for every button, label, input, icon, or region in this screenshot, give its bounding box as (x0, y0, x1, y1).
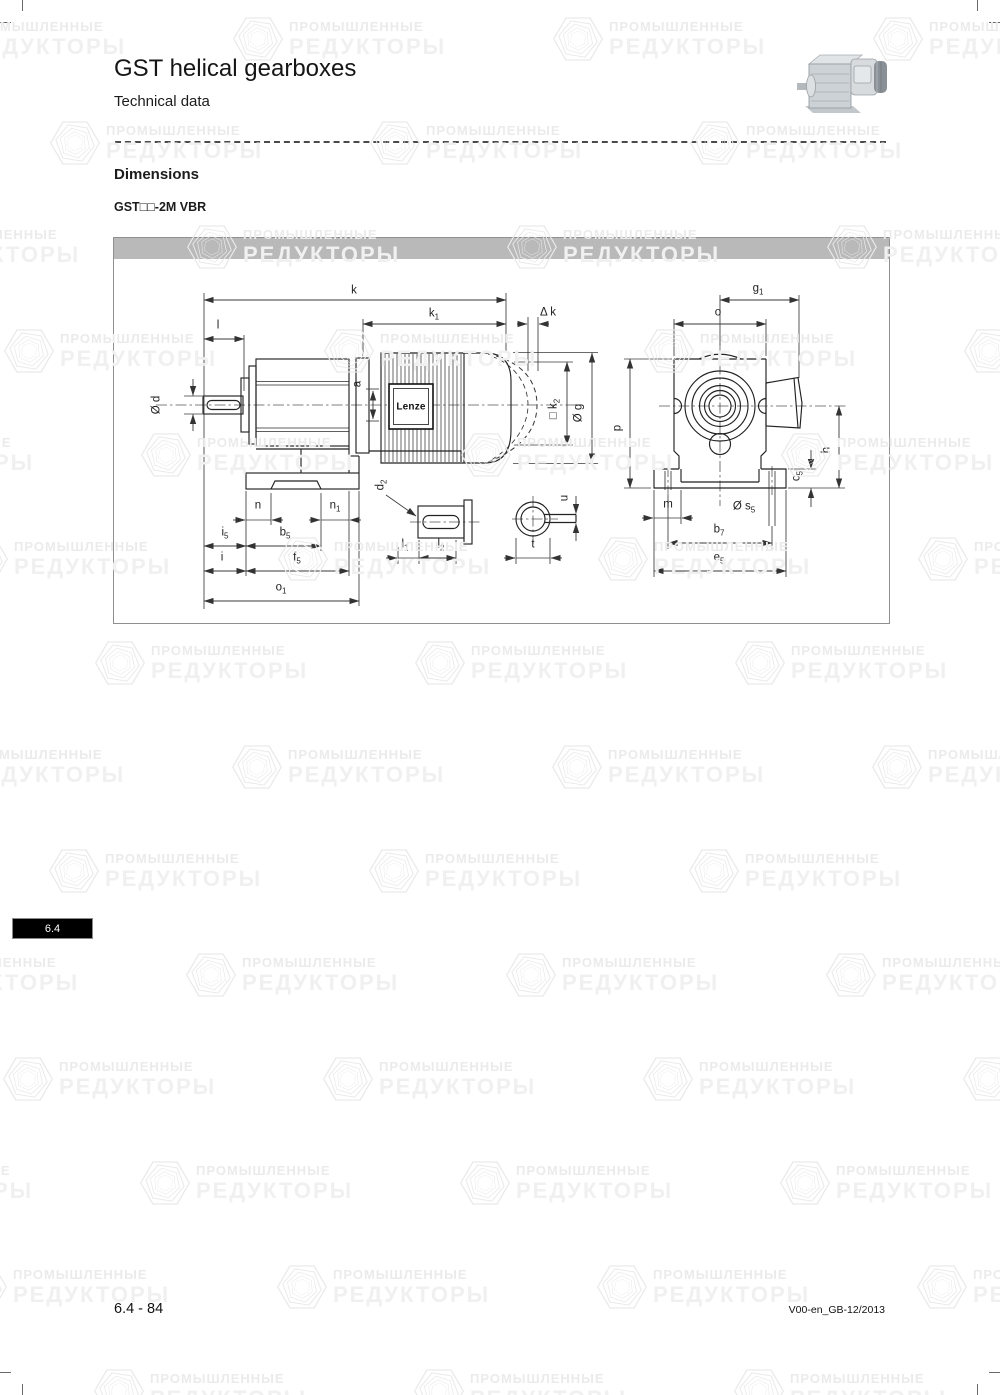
watermark: ПРОМЫШЛЕННЫЕРЕДУКТОРЫ (93, 1356, 307, 1395)
watermark: ПРОМЫШЛЕННЫЕРЕДУКТОРЫ (963, 316, 1000, 386)
watermark-hex-logo (322, 1044, 374, 1114)
dim-label-dk: Δ k (540, 308, 556, 321)
page: GST helical gearboxes Technical data Dim… (0, 0, 1000, 1395)
watermark: ПРОМЫШЛЕННЫЕРЕДУКТОРЫ (596, 1252, 810, 1322)
watermark: ПРОМЫШЛЕННЫЕРЕДУКТОРЫ (48, 836, 262, 906)
watermark-hex-logo (825, 940, 877, 1010)
dim-label-o: o (715, 308, 721, 321)
watermark-hex-logo (3, 316, 55, 386)
dimension-drawing-frame: Lenze k k1 Δ k l Ø d a □ k2 Ø g n n1 i5 … (113, 237, 890, 624)
watermark: ПРОМЫШЛЕННЫЕРЕДУКТОРЫ (0, 212, 80, 282)
watermark: ПРОМЫШЛЕННЫЕРЕДУКТОРЫ (414, 628, 628, 698)
dim-label-g1: g1 (753, 284, 764, 297)
watermark: ПРОМЫШЛЕННЫЕРЕДУКТОРЫ (369, 108, 583, 178)
watermark: ПРОМЫШЛЕННЫЕРЕДУКТОРЫ (0, 4, 126, 74)
dim-label-i5: i5 (221, 528, 228, 541)
watermark-hex-logo (688, 836, 740, 906)
watermark: ПРОМЫШЛЕННЫЕРЕДУКТОРЫ (0, 420, 34, 490)
watermark-hex-logo (551, 732, 603, 802)
dim-label-u: u (560, 495, 573, 501)
watermark-hex-logo (916, 1252, 968, 1322)
watermark-hex-logo (0, 524, 9, 594)
watermark: ПРОМЫШЛЕННЫЕРЕДУКТОРЫ (688, 836, 902, 906)
crop-mark (989, 1372, 1000, 1373)
watermark: ПРОМЫШЛЕННЫЕРЕДУКТОРЫ (505, 940, 719, 1010)
watermark: ПРОМЫШЛЕННЫЕРЕДУКТОРЫ (185, 940, 399, 1010)
watermark-hex-logo (2, 1044, 54, 1114)
page-title: GST helical gearboxes (114, 55, 356, 83)
watermark-hex-logo (505, 940, 557, 1010)
watermark: ПРОМЫШЛЕННЫЕРЕДУКТОРЫ (551, 732, 765, 802)
document-code: V00-en_GB-12/2013 (789, 1304, 885, 1316)
watermark-hex-logo (779, 1148, 831, 1218)
dim-label-n1: n1 (330, 501, 341, 514)
dim-label-d2: d2 (376, 480, 389, 491)
watermark-hex-logo (459, 1148, 511, 1218)
watermark: ПРОМЫШЛЕННЫЕРЕДУКТОРЫ (552, 4, 766, 74)
dim-label-k: k (351, 286, 357, 299)
dashed-separator (115, 141, 886, 143)
watermark-hex-logo (0, 1252, 8, 1322)
page-number: 6.4 - 84 (114, 1301, 163, 1317)
watermark-hex-logo (552, 4, 604, 74)
watermark: ПРОМЫШЛЕННЫЕРЕДУКТОРЫ (0, 732, 125, 802)
crop-mark (22, 0, 23, 11)
watermark-hex-logo (642, 1044, 694, 1114)
dim-label-p: p (613, 425, 626, 431)
dim-label-d: Ø d (152, 396, 165, 415)
dim-label-a: a (353, 381, 366, 387)
crop-mark (989, 22, 1000, 23)
watermark-hex-logo (734, 628, 786, 698)
watermark: ПРОМЫШЛЕННЫЕРЕДУКТОРЫ (733, 1356, 947, 1395)
watermark-hex-logo (49, 108, 101, 178)
watermark: ПРОМЫШЛЕННЫЕРЕДУКТОРЫ (642, 1044, 856, 1114)
watermark-hex-logo (276, 1252, 328, 1322)
watermark-hex-logo (963, 316, 1000, 386)
watermark-hex-logo (917, 524, 969, 594)
crop-mark (22, 1384, 23, 1395)
watermark-hex-logo (185, 940, 237, 1010)
dim-label-t: t (531, 540, 534, 553)
watermark: ПРОМЫШЛЕННЫЕРЕДУКТОРЫ (871, 732, 1000, 802)
dim-label-i: i (221, 553, 224, 566)
watermark-hex-logo (733, 1356, 785, 1395)
watermark: ПРОМЫШЛЕННЫЕРЕДУКТОРЫ (779, 1148, 993, 1218)
watermark: ПРОМЫШЛЕННЫЕРЕДУКТОРЫ (459, 1148, 673, 1218)
crop-mark (0, 1372, 11, 1373)
dim-label-g: Ø g (574, 404, 587, 423)
dim-label-o1: o1 (276, 583, 287, 596)
dim-label-f5: f5 (293, 553, 301, 566)
watermark: ПРОМЫШЛЕННЫЕРЕДУКТОРЫ (0, 1148, 33, 1218)
dim-label-e5: e5 (714, 553, 725, 566)
watermark-hex-logo (369, 108, 421, 178)
watermark: ПРОМЫШЛЕННЫЕРЕДУКТОРЫ (322, 1044, 536, 1114)
watermark-hex-logo (689, 108, 741, 178)
dim-label-m: m (663, 500, 673, 513)
watermark-hex-logo (414, 628, 466, 698)
watermark: ПРОМЫШЛЕННЫЕРЕДУКТОРЫ (2, 1044, 216, 1114)
watermark: ПРОМЫШЛЕННЫЕРЕДУКТОРЫ (734, 628, 948, 698)
watermark-hex-logo (596, 1252, 648, 1322)
dim-label-b5: b5 (280, 528, 291, 541)
watermark: ПРОМЫШЛЕННЫЕРЕДУКТОРЫ (413, 1356, 627, 1395)
watermark-hex-logo (48, 836, 100, 906)
watermark-hex-logo (413, 1356, 465, 1395)
page-subtitle: Technical data (114, 93, 210, 110)
watermark-hex-logo (962, 1044, 1000, 1114)
dimension-drawing (114, 238, 889, 623)
watermark: ПРОМЫШЛЕННЫЕРЕДУКТОРЫ (917, 524, 1000, 594)
dim-label-b7: b7 (714, 525, 725, 538)
gearbox-photo (795, 42, 900, 120)
watermark-hex-logo (231, 732, 283, 802)
motor-brand-label: Lenze (396, 402, 425, 413)
dim-label-l: l (217, 321, 220, 334)
watermark-hex-logo (871, 732, 923, 802)
watermark: ПРОМЫШЛЕННЫЕРЕДУКТОРЫ (368, 836, 582, 906)
watermark: ПРОМЫШЛЕННЫЕРЕДУКТОРЫ (916, 1252, 1000, 1322)
watermark: ПРОМЫШЛЕННЫЕРЕДУКТОРЫ (825, 940, 1000, 1010)
watermark-hex-logo (93, 1356, 145, 1395)
watermark: ПРОМЫШЛЕННЫЕРЕДУКТОРЫ (0, 940, 79, 1010)
watermark-hex-logo (94, 628, 146, 698)
dim-label-s5: Ø s5 (733, 502, 755, 515)
watermark: ПРОМЫШЛЕННЫЕРЕДУКТОРЫ (139, 1148, 353, 1218)
watermark-hex-logo (368, 836, 420, 906)
dim-label-l1: l1 (401, 540, 408, 553)
model-designation: GST□□-2M VBR (114, 200, 206, 214)
dim-label-c5: c5 (792, 471, 805, 481)
watermark: ПРОМЫШЛЕННЫЕРЕДУКТОРЫ (94, 628, 308, 698)
dim-label-l2: l2 (437, 540, 444, 553)
watermark: ПРОМЫШЛЕННЫЕРЕДУКТОРЫ (231, 732, 445, 802)
crop-mark (0, 22, 11, 23)
section-tab: 6.4 (13, 919, 92, 938)
dim-label-k2: □ k2 (549, 399, 562, 419)
watermark: ПРОМЫШЛЕННЫЕРЕДУКТОРЫ (962, 1044, 1000, 1114)
crop-mark (977, 1384, 978, 1395)
dim-label-h: h (822, 447, 835, 453)
dim-label-n: n (255, 501, 261, 514)
dim-label-k1: k1 (429, 309, 439, 322)
watermark: ПРОМЫШЛЕННЫЕРЕДУКТОРЫ (276, 1252, 490, 1322)
watermark-hex-logo (139, 1148, 191, 1218)
crop-mark (977, 0, 978, 11)
section-heading: Dimensions (114, 166, 199, 183)
